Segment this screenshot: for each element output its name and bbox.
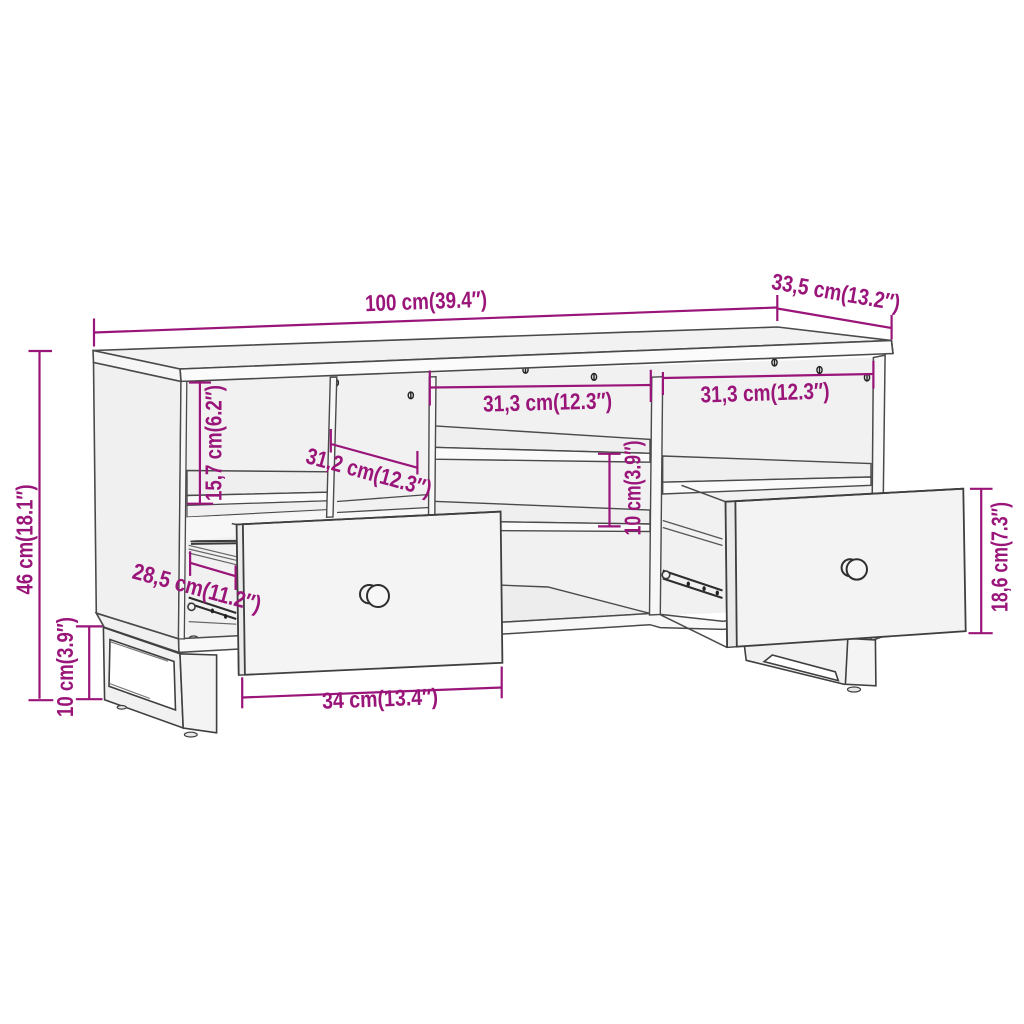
svg-text:15,7 cm(6.2″): 15,7 cm(6.2″) [201, 385, 227, 501]
svg-text:31,3 cm(12.3″): 31,3 cm(12.3″) [483, 387, 613, 416]
svg-text:31,3 cm(12.3″): 31,3 cm(12.3″) [700, 377, 830, 407]
svg-text:46 cm(18.1″): 46 cm(18.1″) [11, 485, 37, 595]
svg-text:10 cm(3.9″): 10 cm(3.9″) [52, 617, 78, 717]
svg-text:100 cm(39.4″): 100 cm(39.4″) [365, 286, 488, 316]
svg-text:18,6 cm(7.3″): 18,6 cm(7.3″) [987, 502, 1013, 612]
svg-text:34 cm(13.4″): 34 cm(13.4″) [322, 683, 439, 713]
svg-text:10 cm(3.9″): 10 cm(3.9″) [620, 441, 646, 536]
